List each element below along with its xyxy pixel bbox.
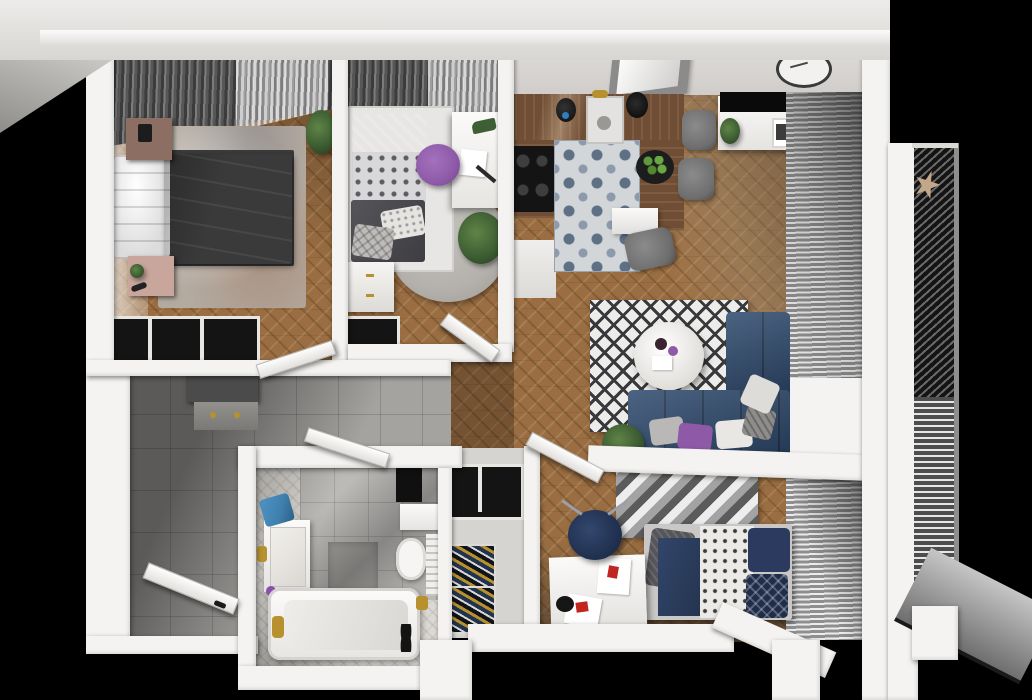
wall-closet-bed3: [524, 446, 540, 642]
coffee-table-decor-dark: [655, 338, 667, 350]
bathroom-white-shelf: [400, 504, 438, 530]
poster-red-mark-2: [575, 601, 588, 613]
black-vase: [626, 92, 648, 118]
sink-gold-faucet: [592, 90, 608, 98]
closet-hanging-rack: [446, 464, 524, 520]
balcony-top-rail: [912, 143, 958, 148]
wall-bottom-left: [86, 636, 258, 654]
third-bedroom-window-blinds: [786, 464, 864, 640]
vanity-gold-faucet: [257, 546, 267, 562]
balcony-bottom-wall: [912, 606, 958, 660]
master-bed-pillow-stack: [114, 155, 170, 259]
plum-desk-chair: [416, 144, 460, 186]
gold-bin: [416, 596, 428, 610]
wall-left-lower: [86, 372, 130, 654]
toilet: [396, 538, 426, 580]
dining-chair-1: [682, 110, 716, 150]
bathroom-wall-left: [238, 446, 256, 690]
second-bed-purple-pillows: [352, 114, 426, 154]
toilet-black-shelf: [396, 468, 422, 502]
sink-drain: [597, 116, 611, 130]
coffee-table-tray: [652, 356, 672, 370]
coffee-table-decor-plum: [668, 346, 678, 356]
second-bed-gray-pillow: [351, 223, 395, 260]
master-bed-purple-duvet: [164, 154, 292, 264]
wall-bed3-bottom: [468, 624, 734, 652]
closet-rack-divider: [478, 466, 482, 512]
wall-bottom-center-chunk: [420, 640, 472, 700]
wall-right-outer: [862, 0, 890, 700]
black-slippers: [398, 624, 414, 652]
cabinet-gold-knob-1: [210, 412, 216, 418]
green-apples: [643, 156, 667, 176]
hallway-floor-upper: [128, 372, 451, 448]
bathtub-basin: [284, 600, 408, 650]
master-wardrobe-divider-1: [148, 318, 152, 362]
third-bed-navy-blanket: [658, 538, 702, 616]
kettle-blue-light: [562, 112, 569, 119]
vanity-marble-top: [270, 527, 306, 587]
second-bed-patterned-duvet: [352, 152, 426, 202]
sofa-pillow-purple: [677, 422, 714, 451]
induction-cooktop: [510, 146, 554, 212]
wall-bed2-kitchen: [498, 30, 514, 352]
top-wall-face-highlight: [40, 30, 890, 46]
living-window-blinds-upper: [786, 92, 864, 382]
third-bed-navy-pillow: [748, 528, 790, 572]
hallway-floor-left-leg: [128, 448, 240, 654]
wall-bed3-bottom-right: [772, 640, 820, 700]
cabinet-gold-knob-2: [234, 412, 240, 418]
floor-plan-stage: [0, 0, 1032, 700]
bathroom-wall-right: [438, 468, 452, 668]
poster-red-mark-1: [607, 565, 619, 579]
gray-shoe-cabinet-top: [186, 374, 258, 402]
nightstand-plant: [130, 264, 144, 278]
dresser-handle-2: [366, 294, 374, 297]
phone-on-nightstand: [138, 124, 152, 142]
balcony-right-rail: [954, 143, 959, 613]
master-wardrobe-divider-2: [200, 318, 204, 362]
third-bed-diamond-pillow: [746, 574, 788, 618]
wall-left-upper: [86, 30, 114, 372]
dining-chair-2: [678, 158, 714, 200]
desk-headphones: [556, 596, 574, 612]
closet-shoe-shelf-upper: [446, 544, 496, 590]
wall-bed1-bed2: [332, 30, 348, 370]
sideboard-plant: [720, 118, 740, 144]
navy-desk-chair: [568, 510, 622, 560]
dresser-handle-1: [366, 274, 374, 277]
white-dresser: [344, 262, 394, 312]
gray-shoe-cabinet-front: [194, 402, 258, 430]
bathroom-mat: [328, 542, 378, 594]
bathtub-gold-tap: [272, 616, 284, 638]
